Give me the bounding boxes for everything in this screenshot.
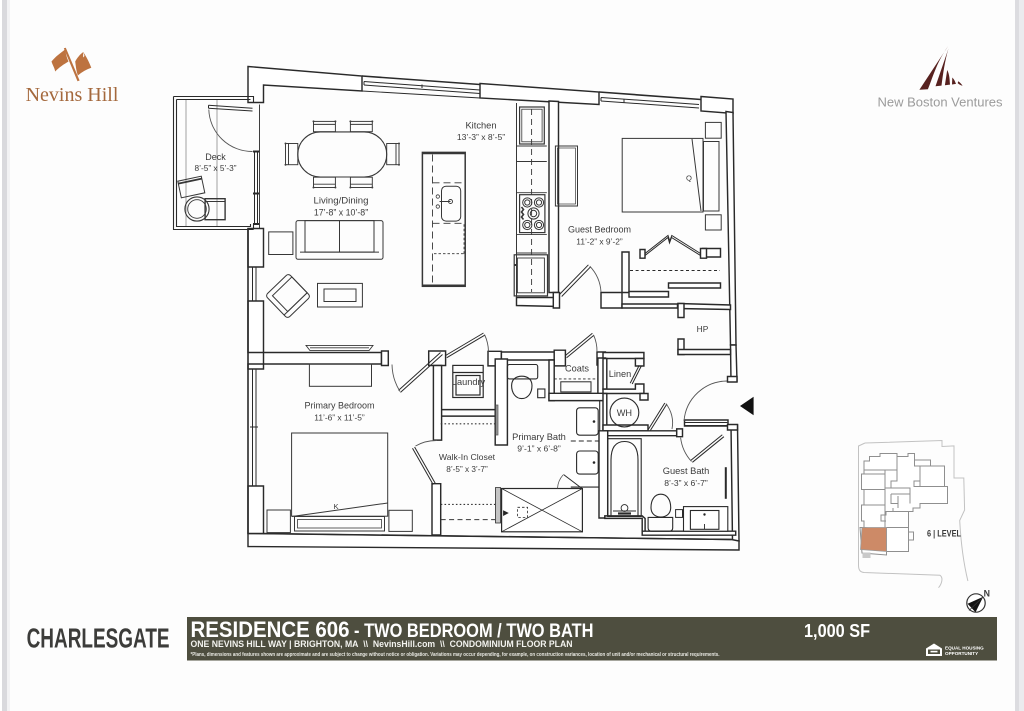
- svg-text:6 | LEVEL: 6 | LEVEL: [927, 529, 962, 539]
- svg-text:8’-5” x 5’-3”: 8’-5” x 5’-3”: [195, 163, 237, 173]
- svg-text:Guest Bath: Guest Bath: [663, 466, 710, 476]
- svg-text:Primary Bedroom: Primary Bedroom: [304, 401, 374, 411]
- svg-text:HP: HP: [697, 324, 709, 334]
- svg-text:Coats: Coats: [565, 364, 589, 374]
- svg-text:11’-6” x 11’-5”: 11’-6” x 11’-5”: [314, 413, 365, 423]
- svg-text:Guest Bedroom: Guest Bedroom: [568, 225, 631, 235]
- svg-text:Living/Dining: Living/Dining: [314, 196, 369, 207]
- svg-text:Primary Bath: Primary Bath: [512, 432, 566, 442]
- svg-text:Walk-In Closet: Walk-In Closet: [439, 452, 496, 462]
- svg-text:N: N: [984, 589, 990, 599]
- svg-text:Deck: Deck: [205, 152, 226, 162]
- svg-text:EQUAL HOUSING: EQUAL HOUSING: [945, 646, 984, 651]
- svg-text:8’-3” x 6’-7”: 8’-3” x 6’-7”: [664, 478, 708, 488]
- svg-text:K: K: [333, 502, 338, 511]
- svg-text:1,000 SF: 1,000 SF: [804, 621, 870, 641]
- svg-text:Laundry: Laundry: [452, 377, 486, 387]
- svg-text:ONE NEVINS HILL WAY | BRIGHTON: ONE NEVINS HILL WAY | BRIGHTON, MA \\ Ne…: [191, 639, 573, 649]
- svg-text:*Plans, dimensions and feature: *Plans, dimensions and features shown ar…: [191, 652, 720, 658]
- svg-text:9’-1” x 6’-8”: 9’-1” x 6’-8”: [517, 444, 561, 454]
- svg-text:Linen: Linen: [609, 369, 631, 379]
- svg-text:Q: Q: [686, 174, 692, 183]
- svg-text:8’-5” x 3’-7”: 8’-5” x 3’-7”: [446, 465, 488, 474]
- svg-text:17’-8” x 10’-8”: 17’-8” x 10’-8”: [314, 208, 368, 218]
- svg-text:Kitchen: Kitchen: [465, 121, 496, 131]
- svg-text:11’-2” x 9’-2”: 11’-2” x 9’-2”: [576, 237, 623, 247]
- svg-text:New Boston Ventures: New Boston Ventures: [877, 95, 1003, 110]
- svg-text:OPPORTUNITY: OPPORTUNITY: [945, 651, 978, 656]
- svg-text:CHARLESGATE: CHARLESGATE: [27, 622, 170, 653]
- svg-text:WH: WH: [617, 408, 632, 418]
- svg-text:13’-3” x 8’-5”: 13’-3” x 8’-5”: [457, 132, 505, 142]
- svg-text:Nevins Hill: Nevins Hill: [26, 84, 119, 106]
